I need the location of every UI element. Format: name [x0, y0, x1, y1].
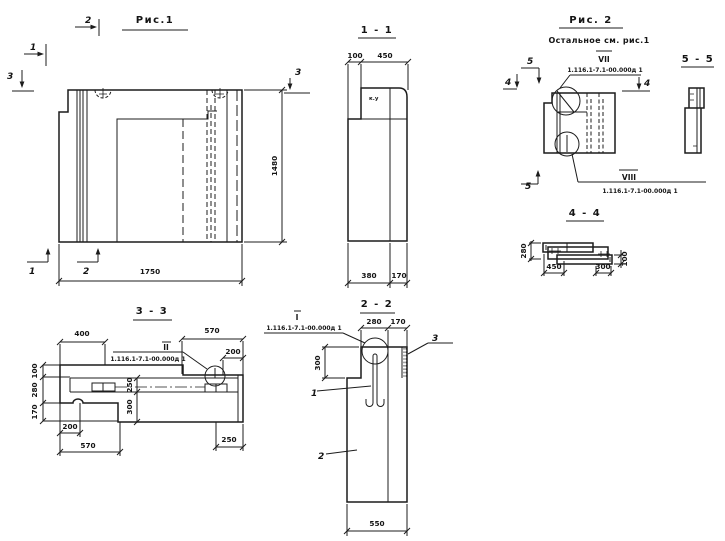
figure-2: Рис. 2 Остальное см. рис.1 5 4 4 5 VII 1…	[503, 15, 706, 195]
fig1-marker-2-bottom: 2	[83, 267, 89, 277]
sec22-dim-170: 170	[390, 317, 405, 326]
sec33-dim-200-bottom: 200	[62, 422, 77, 431]
fig2-section-markers	[503, 68, 650, 184]
fig2-doc-top: 1.116.1-7.1-00.000д 1	[567, 67, 642, 74]
fig2-callout-top-leader	[560, 75, 641, 88]
fig1-marker-2-top: 2	[85, 16, 91, 26]
fig2-roman-bottom: VIII	[622, 173, 636, 182]
fig2-marker-5-top: 5	[527, 57, 533, 67]
fig2-hidden-lines	[587, 93, 603, 153]
fig1-lifting-loop-arcs	[95, 90, 228, 98]
sec22-dimensions	[322, 325, 410, 536]
fig1-dimensions	[56, 87, 287, 286]
section-3-3: 3 - 3 II 1.116.1-7.1-00.000д 1 4	[30, 306, 246, 456]
sec33-title: 3 - 3	[136, 306, 169, 317]
fig2-title: Рис. 2	[569, 15, 613, 26]
sec33-dim-170-left: 170	[30, 404, 39, 419]
fig1-width-dim: 1750	[140, 267, 160, 276]
section-5-5: 5 - 5	[681, 54, 714, 153]
sec55-rebar-marks	[690, 94, 697, 146]
drawing-canvas: Рис.1 2 1 3 1 2 3	[0, 0, 725, 541]
sec33-dim-570-bottom: 570	[80, 441, 95, 450]
fig1-marker-3-right: 3	[295, 68, 301, 78]
sec11-dim-450: 450	[377, 51, 392, 60]
section-2-2: 2 - 2 I 1.116.1-7.1-00.000д 1 280 170 30…	[264, 299, 453, 536]
sec55-title: 5 - 5	[682, 54, 715, 65]
fig1-vertical-joints	[77, 90, 227, 242]
sec11-dim-380: 380	[361, 271, 376, 280]
sec22-detail-circle	[362, 338, 388, 364]
fig1-height-dim: 1480	[270, 156, 279, 176]
sec44-planks-outline	[543, 243, 612, 264]
section-4-4: 4 - 4 280 100 450 300	[519, 208, 629, 276]
sec11-body-outline	[348, 88, 407, 241]
sec22-roman: I	[296, 313, 299, 322]
fig1-marker-3-left: 3	[7, 72, 13, 82]
sec11-title: 1 - 1	[361, 25, 394, 36]
sec44-dim-300: 300	[595, 262, 610, 271]
sec33-dim-280-left: 280	[30, 382, 39, 397]
fig1-marker-1-bottom: 1	[29, 267, 35, 277]
fig1-title: Рис.1	[136, 15, 175, 26]
technical-drawing-sheet: Рис.1 2 1 3 1 2 3	[0, 0, 725, 541]
sec22-title: 2 - 2	[361, 299, 394, 310]
sec22-gasket-hatch	[404, 348, 406, 377]
sec22-dim-550: 550	[369, 519, 384, 528]
fig2-subtitle: Остальное см. рис.1	[548, 36, 649, 45]
sec55-body-outline	[685, 88, 704, 153]
sec11-dimensions	[345, 59, 411, 288]
sec11-inner-lines	[361, 88, 407, 241]
sec22-part-leader-3	[408, 343, 453, 354]
fig2-callout-bottom-leader	[572, 154, 706, 182]
sec33-dim-100-left: 100	[30, 363, 39, 378]
sec33-dim-250-mid: 250	[125, 377, 134, 392]
sec33-roman: II	[163, 343, 169, 352]
fig1-section-markers	[12, 19, 310, 262]
sec33-dim-250-bottom: 250	[221, 435, 236, 444]
fig2-doc-bottom: 1.116.1-7.1-00.000д 1	[602, 188, 677, 195]
sec33-body-outline	[60, 365, 243, 422]
sec33-dim-200-right: 200	[225, 347, 240, 356]
sec11-note: к.у	[369, 96, 379, 102]
fig2-marker-5-bottom: 5	[525, 182, 531, 192]
fig2-marker-4-right: 4	[643, 79, 650, 89]
sec55-inner-lines	[697, 88, 700, 153]
sec44-dim-right: 100	[620, 251, 629, 266]
sec11-dim-100: 100	[347, 51, 362, 60]
sec22-inner-lines	[388, 347, 402, 502]
sec33-doc: 1.116.1-7.1-00.000д 1	[110, 356, 185, 363]
sec33-inner-lines	[70, 375, 238, 422]
sec33-dim-570-top: 570	[204, 326, 219, 335]
fig2-marker-4-left: 4	[504, 78, 511, 88]
fig1-marker-1-top: 1	[30, 43, 36, 53]
sec11-dim-170: 170	[391, 271, 406, 280]
sec44-dim-left: 280	[519, 243, 528, 258]
sec22-part-label-1: 1	[311, 389, 317, 399]
sec22-part-leader-2	[326, 450, 357, 454]
fig2-detail-circle-top	[552, 87, 580, 115]
sec22-part-leader-1	[317, 386, 371, 391]
sec44-title: 4 - 4	[569, 208, 602, 219]
fig2-roman-top: VII	[598, 55, 610, 64]
figure-1-elevation: Рис.1 2 1 3 1 2 3	[7, 15, 310, 286]
sec22-dim-280: 280	[366, 317, 381, 326]
sec33-dim-300-mid: 300	[125, 399, 134, 414]
section-1-1: 1 - 1 к.у 100 450 380 170	[345, 25, 411, 288]
sec33-embed-plates	[92, 383, 227, 392]
sec33-dim-400: 400	[74, 329, 89, 338]
sec22-dim-300: 300	[313, 355, 322, 370]
sec44-dim-450: 450	[546, 262, 561, 271]
fig2-inner-lines	[557, 93, 587, 153]
sec22-doc: 1.116.1-7.1-00.000д 1	[266, 325, 341, 332]
sec22-part-label-2: 2	[318, 452, 324, 462]
fig1-inner-opening	[117, 111, 217, 242]
sec33-dimensions	[40, 336, 246, 456]
sec22-callout-leader	[264, 333, 365, 343]
